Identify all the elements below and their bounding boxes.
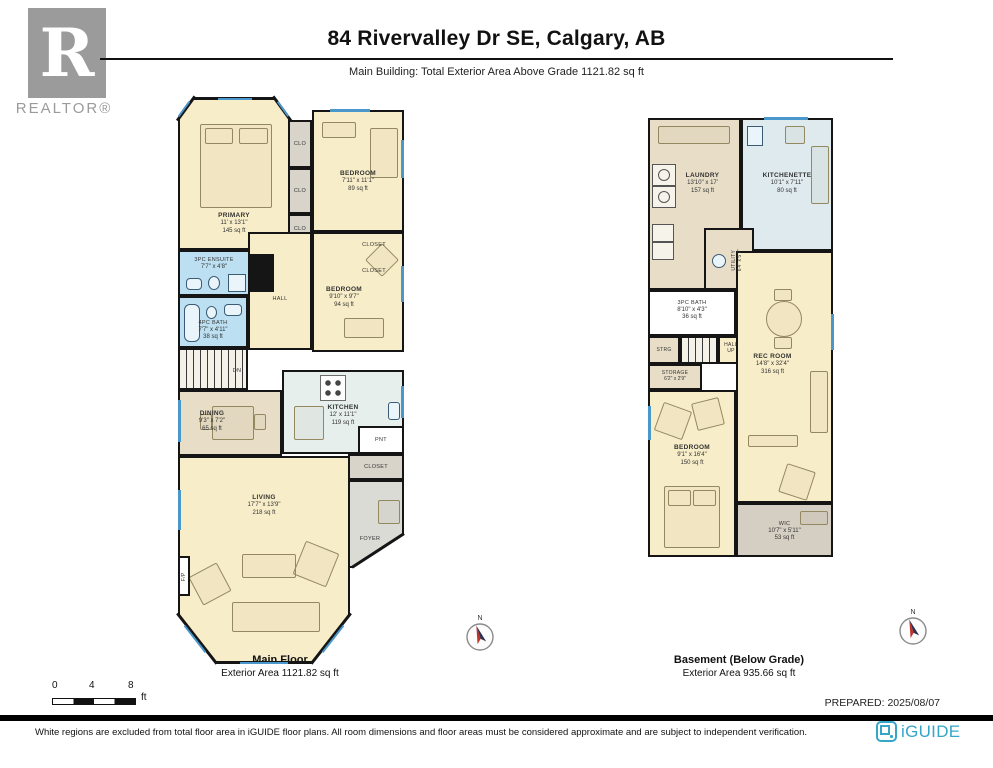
room-dims: 6'2" x 2'9" — [650, 376, 700, 382]
chair-furniture — [774, 337, 792, 349]
room-name: DINING — [162, 410, 262, 418]
room-living: LIVING 17'7" x 13'9" 218 sq ft — [178, 456, 350, 664]
window-marker — [218, 98, 252, 100]
room-name: STRG — [650, 347, 678, 353]
room-area: 38 sq ft — [180, 334, 246, 342]
room-dims: 12' x 11'1" — [284, 412, 402, 420]
room-name: BEDROOM — [314, 170, 402, 178]
room-dims: 17'7" x 13'9" — [180, 502, 348, 510]
room-dims: 10'1" x 7'11" — [743, 180, 831, 188]
pillow — [693, 490, 716, 506]
room-name: PRIMARY — [180, 212, 288, 220]
toilet-fixture — [206, 306, 217, 319]
room-dining: DINING 9'3" x 7'2" 65 sq ft — [178, 390, 282, 456]
realtor-logo: R — [28, 8, 106, 98]
room-name: KITCHEN — [284, 404, 402, 412]
sofa-furniture — [810, 371, 828, 433]
desk-furniture — [344, 318, 384, 338]
room-dims: 8'10" x 4'3" — [650, 307, 734, 315]
compass-icon: N — [463, 612, 497, 654]
room-dims: 9'3" x 7'2" — [162, 418, 262, 426]
page-title: 84 Rivervalley Dr SE, Calgary, AB — [0, 27, 993, 51]
room-area: 119 sq ft — [284, 420, 402, 428]
iguide-wordmark: iGUIDE — [901, 722, 960, 742]
room-dims: 7'11" x 11'1" — [314, 178, 402, 186]
compass-icon: N — [896, 606, 930, 648]
room-dims: 9'10" x 9'7" — [300, 294, 388, 302]
room-area: 150 sq ft — [650, 460, 734, 468]
room-dims: 7'7" x 4'11" — [180, 327, 246, 335]
room-dims: 13'10" x 17' — [658, 180, 747, 188]
plan-name: Main Floor — [130, 654, 430, 666]
room-bedroom-3: BEDROOM 9'10" x 9'7" 94 sq ft — [312, 232, 404, 352]
shower-fixture — [228, 274, 246, 292]
room-wic: WIC 10'7" x 5'11" 53 sq ft — [736, 503, 833, 557]
room-area: 53 sq ft — [738, 535, 831, 543]
pillow — [205, 128, 234, 144]
room-name: CLOSET — [350, 464, 402, 471]
bed-furniture — [664, 486, 720, 548]
footer-disclaimer: White regions are excluded from total fl… — [35, 727, 815, 738]
scale-tick: 4 — [89, 680, 95, 691]
armchair-furniture — [654, 402, 692, 440]
room-name: CLO — [290, 141, 310, 148]
room-name: 3PC ENSUITE — [180, 257, 248, 264]
room-pantry: PNT — [358, 426, 404, 454]
room-name: LAUNDRY — [658, 172, 747, 180]
fridge-furniture — [785, 126, 805, 144]
room-clo-2: CLO — [288, 168, 312, 214]
room-name: PNT — [360, 437, 402, 444]
realtor-wordmark: REALTOR® — [4, 100, 124, 117]
room-area: 65 sq ft — [162, 426, 262, 434]
fireplace: F/P — [178, 556, 190, 596]
stairs-dn-label: DN — [222, 368, 252, 375]
room-area: 36 sq ft — [650, 314, 734, 322]
window-marker — [764, 117, 808, 120]
bench-furniture — [378, 500, 400, 524]
room-primary-bedroom: PRIMARY 11' x 13'1" 145 sq ft — [178, 98, 290, 250]
page-subtitle: Main Building: Total Exterior Area Above… — [0, 66, 993, 78]
room-name: KITCHENETTE — [743, 172, 831, 180]
laundry-sink-icon — [652, 224, 674, 242]
armchair-furniture — [778, 463, 816, 501]
room-dims: 6'4" x 5'7" — [737, 237, 743, 283]
basement-plan: LAUNDRY 13'10" x 17' 157 sq ft KITCHENET… — [648, 118, 833, 558]
iguide-logo: iGUIDE — [876, 721, 960, 742]
scale-unit: ft — [141, 692, 147, 703]
main-floor-plan: PRIMARY 11' x 13'1" 145 sq ft CLO CLO CL… — [178, 98, 404, 582]
pillow — [668, 490, 691, 506]
room-name: CLO — [290, 226, 310, 233]
room-dims: 9'1" x 16'4" — [650, 452, 734, 460]
room-strg: STRG — [648, 336, 680, 364]
toilet-fixture — [208, 276, 220, 290]
room-clo-1: CLO — [288, 120, 312, 168]
room-dims: 14'8" x 32'4" — [726, 361, 819, 369]
wall-mass — [250, 254, 274, 292]
room-basement-bedroom: BEDROOM 9'1" x 16'4" 150 sq ft — [648, 390, 736, 557]
window-marker — [330, 109, 370, 112]
room-rec-room: REC ROOM 14'8" x 32'4" 316 sq ft — [736, 251, 833, 503]
scale-tick: 0 — [52, 680, 58, 691]
media-bench-furniture — [748, 435, 798, 447]
chair-furniture — [774, 289, 792, 301]
room-dims: 11' x 13'1" — [180, 220, 288, 228]
room-area: 218 sq ft — [180, 510, 348, 518]
iguide-icon — [876, 721, 897, 742]
room-name: CLO — [290, 188, 310, 195]
window-marker — [178, 490, 181, 530]
room-area: 80 sq ft — [743, 188, 831, 196]
room-area: 316 sq ft — [726, 369, 819, 377]
window-marker — [831, 314, 834, 350]
compass-north-label: N — [477, 615, 482, 622]
room-foyer: FOYER — [348, 480, 404, 568]
room-name: WIC — [738, 521, 831, 528]
counter-furniture — [658, 126, 730, 144]
desk-furniture — [322, 122, 356, 138]
pillow — [239, 128, 268, 144]
room-area: 94 sq ft — [300, 302, 388, 310]
sink-fixture — [747, 126, 763, 146]
room-kitchenette: KITCHENETTE 10'1" x 7'11" 80 sq ft — [741, 118, 833, 251]
stove-icon — [320, 375, 346, 401]
room-3pc-bath: 3PC BATH 8'10" x 4'3" 36 sq ft — [648, 290, 736, 336]
stairs-up — [680, 336, 718, 364]
title-divider — [100, 58, 893, 60]
room-3pc-ensuite: 3PC ENSUITE 7'7" x 4'8" — [178, 250, 250, 296]
floor-plan-page: R REALTOR® 84 Rivervalley Dr SE, Calgary… — [0, 0, 993, 768]
sofa-furniture — [232, 602, 320, 632]
room-closet-3: CLOSET — [348, 454, 404, 480]
armchair-furniture — [691, 397, 725, 431]
room-name: 3PC BATH — [650, 300, 734, 307]
compass-north-label: N — [910, 609, 915, 616]
room-name: CLOSET — [346, 268, 402, 275]
room-storage: STORAGE 6'2" x 2'9" — [648, 364, 702, 390]
room-name: BEDROOM — [650, 444, 734, 452]
armchair-furniture — [188, 562, 231, 605]
room-dims: 10'7" x 5'11" — [738, 528, 831, 536]
window-marker — [240, 662, 288, 664]
plan-area: Exterior Area 935.66 sq ft — [589, 668, 889, 679]
main-floor-caption: Main Floor Exterior Area 1121.82 sq ft — [130, 654, 430, 679]
room-4pc-bath: 4PC BATH 7'7" x 4'11" 38 sq ft — [178, 296, 248, 348]
scale-bar-segments — [52, 698, 136, 705]
coffee-table-furniture — [242, 554, 296, 578]
room-dims: 7'7" x 4'8" — [180, 264, 248, 272]
room-name: BEDROOM — [300, 286, 388, 294]
room-name: CLOSET — [346, 242, 402, 249]
room-area: 157 sq ft — [658, 188, 747, 196]
room-name: DN — [222, 368, 252, 375]
window-marker — [648, 406, 651, 440]
room-name: LIVING — [180, 494, 348, 502]
sink-fixture — [224, 304, 242, 316]
laundry-sink-icon — [652, 242, 674, 260]
room-name: 4PC BATH — [180, 320, 246, 327]
plan-area: Exterior Area 1121.82 sq ft — [130, 668, 430, 679]
room-area: 89 sq ft — [314, 186, 402, 194]
basement-caption: Basement (Below Grade) Exterior Area 935… — [589, 654, 889, 679]
room-name: F/P — [181, 573, 187, 581]
water-heater-fixture — [712, 254, 726, 268]
armchair-furniture — [293, 541, 340, 588]
footer-divider — [0, 715, 993, 721]
sink-fixture — [186, 278, 202, 290]
room-bedroom-2: BEDROOM 7'11" x 11'1" 89 sq ft — [312, 110, 404, 232]
scale-bar: 0 4 8 ft — [52, 680, 172, 710]
prepared-date: PREPARED: 2025/08/07 — [700, 697, 940, 709]
scale-tick: 8 — [128, 680, 134, 691]
bed-furniture — [200, 124, 272, 208]
plan-name: Basement (Below Grade) — [589, 654, 889, 666]
room-name: REC ROOM — [726, 353, 819, 361]
table-furniture — [766, 301, 802, 337]
